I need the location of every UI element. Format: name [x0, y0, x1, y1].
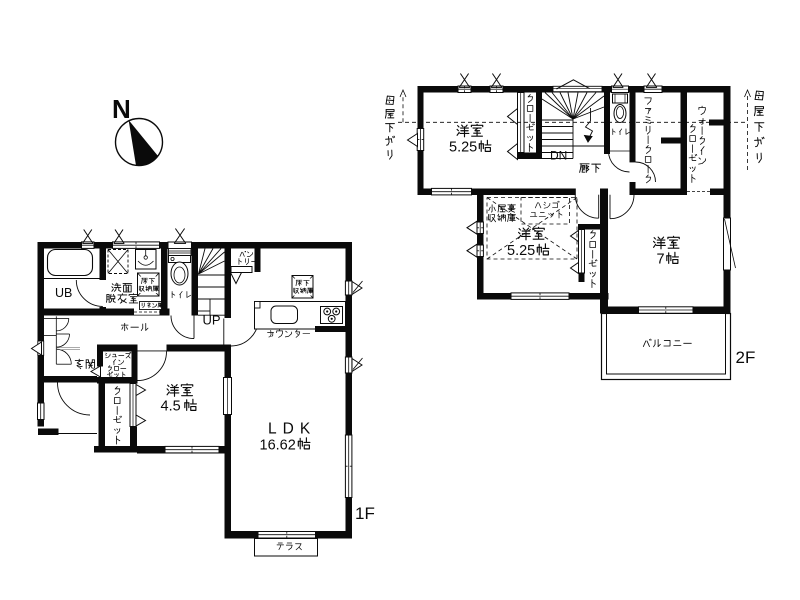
svg-text:5.25: 5.25 — [507, 243, 535, 259]
svg-text:N: N — [112, 94, 131, 124]
svg-text:16.62: 16.62 — [260, 438, 296, 454]
svg-text:4.5: 4.5 — [161, 399, 181, 415]
svg-text:DN: DN — [550, 149, 567, 163]
svg-text:LDK: LDK — [268, 421, 316, 438]
svg-text:5.25: 5.25 — [449, 140, 477, 156]
svg-text:2F: 2F — [736, 348, 756, 367]
svg-text:UP: UP — [203, 313, 221, 328]
svg-text:7: 7 — [657, 252, 665, 268]
svg-text:1F: 1F — [355, 504, 375, 523]
svg-text:UB: UB — [55, 286, 72, 300]
